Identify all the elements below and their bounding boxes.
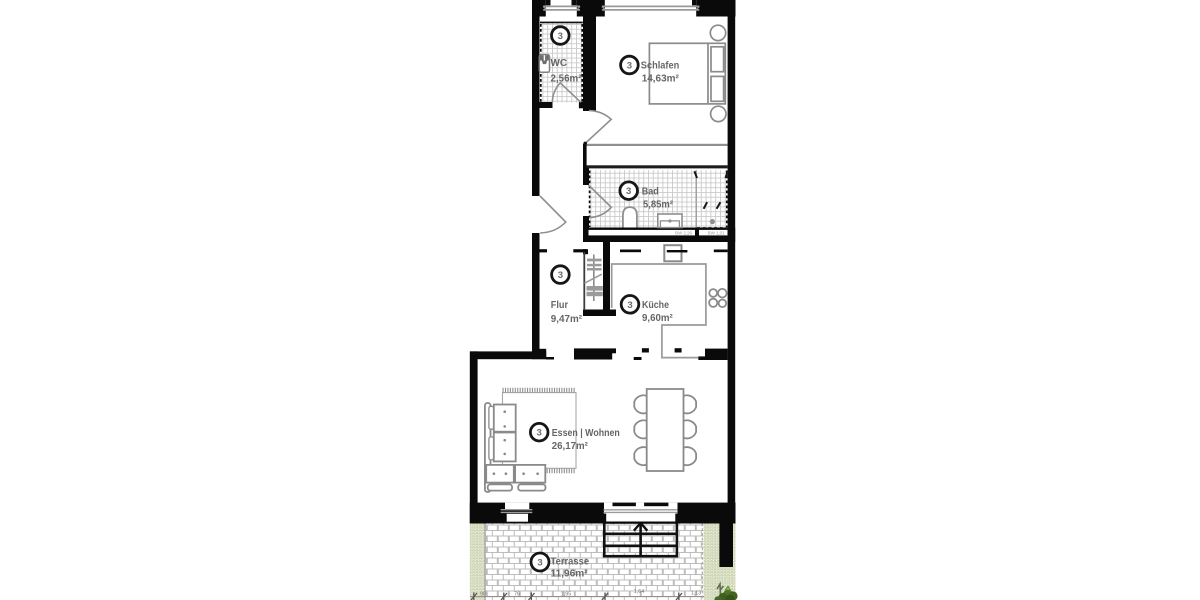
svg-text:90: 90 bbox=[480, 591, 486, 597]
svg-text:3: 3 bbox=[537, 558, 542, 569]
svg-text:BW 2,26: BW 2,26 bbox=[675, 231, 692, 236]
svg-text:1,13: 1,13 bbox=[691, 591, 702, 597]
svg-text:Terrasse: Terrasse bbox=[551, 557, 590, 568]
svg-text:Schlafen: Schlafen bbox=[641, 60, 679, 71]
svg-text:3: 3 bbox=[558, 270, 563, 281]
svg-text:Bad: Bad bbox=[642, 187, 659, 198]
svg-text:1,95: 1,95 bbox=[561, 591, 572, 597]
svg-text:5,85m²: 5,85m² bbox=[643, 200, 674, 211]
svg-text:11,96m²: 11,96m² bbox=[551, 568, 589, 579]
svg-text:Essen | Wohnen: Essen | Wohnen bbox=[552, 428, 620, 439]
svg-text:3: 3 bbox=[558, 31, 563, 42]
svg-text:2,56m²: 2,56m² bbox=[551, 74, 583, 85]
svg-text:WC: WC bbox=[551, 58, 568, 69]
svg-text:Flur: Flur bbox=[551, 300, 568, 311]
svg-text:9,47m²: 9,47m² bbox=[551, 314, 583, 325]
svg-text:3: 3 bbox=[626, 186, 631, 197]
svg-text:9,60m²: 9,60m² bbox=[642, 313, 673, 324]
svg-text:Küche: Küche bbox=[642, 300, 669, 311]
svg-text:3: 3 bbox=[627, 61, 632, 72]
svg-text:3: 3 bbox=[537, 428, 542, 439]
svg-text:26,17m²: 26,17m² bbox=[552, 441, 589, 452]
svg-text:1,64: 1,64 bbox=[634, 589, 645, 595]
svg-text:76: 76 bbox=[514, 591, 520, 597]
svg-text:3: 3 bbox=[627, 300, 632, 311]
svg-text:14,63m²: 14,63m² bbox=[642, 74, 680, 85]
svg-text:BW 1,01: BW 1,01 bbox=[708, 231, 725, 236]
